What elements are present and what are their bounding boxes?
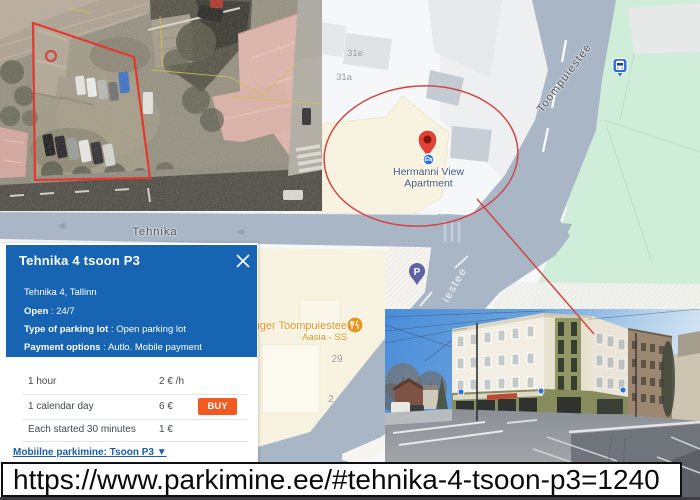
svg-text:Apartment: Apartment bbox=[404, 178, 453, 190]
svg-text:31a: 31a bbox=[336, 72, 353, 83]
svg-text:31e: 31e bbox=[347, 48, 363, 59]
svg-text:Aasia - SS: Aasia - SS bbox=[302, 332, 347, 343]
svg-text:Tehnika: Tehnika bbox=[133, 226, 178, 238]
svg-text:Hermanni View: Hermanni View bbox=[393, 166, 464, 178]
svg-text:2: 2 bbox=[328, 394, 334, 405]
svg-text:P: P bbox=[414, 267, 421, 278]
svg-text:29: 29 bbox=[331, 354, 343, 365]
svg-text:nger Toompuiestee: nger Toompuiestee bbox=[254, 320, 347, 332]
